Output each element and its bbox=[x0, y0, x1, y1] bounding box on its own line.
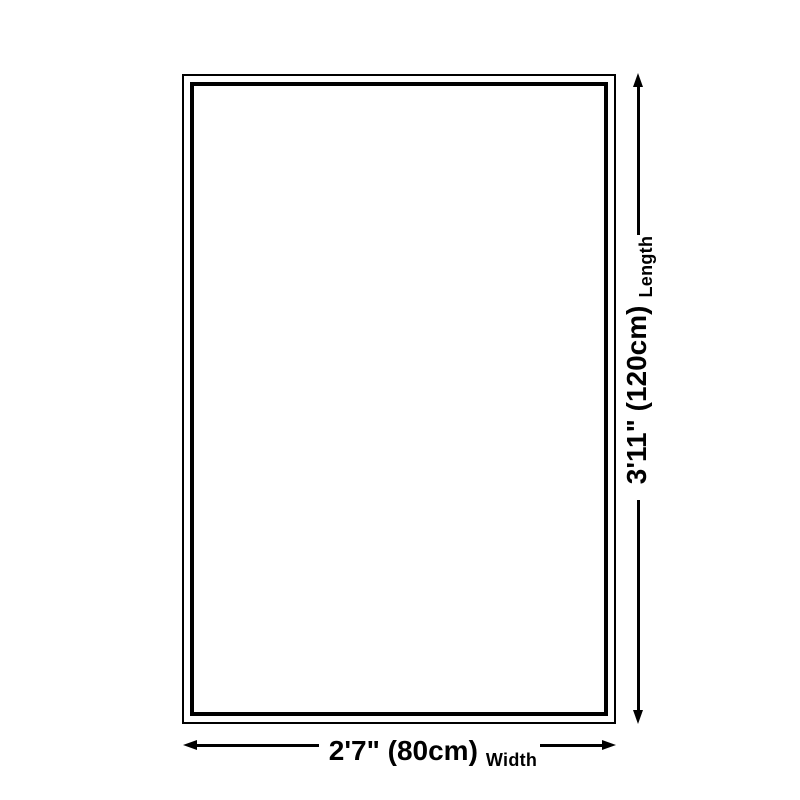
length-name: Length bbox=[636, 236, 656, 298]
width-dimension-line-left bbox=[196, 744, 319, 747]
length-dimension-label: 3'11" (120cm)Length bbox=[623, 236, 651, 485]
width-name: Width bbox=[486, 750, 537, 770]
width-dimension-label: 2'7" (80cm)Width bbox=[329, 737, 537, 765]
arrow-right-icon bbox=[602, 740, 616, 750]
width-dimension-line-right bbox=[540, 744, 603, 747]
length-dimension-line-upper bbox=[637, 85, 640, 235]
item-outline-outer bbox=[182, 74, 616, 724]
length-value: 3'11" (120cm) bbox=[621, 306, 652, 485]
arrow-left-icon bbox=[183, 740, 197, 750]
size-diagram: 3'11" (120cm)Length 2'7" (80cm)Width bbox=[0, 0, 800, 800]
item-outline-inner bbox=[190, 82, 608, 716]
width-value: 2'7" (80cm) bbox=[329, 735, 478, 766]
length-dimension-line-lower bbox=[637, 500, 640, 712]
arrow-down-icon bbox=[633, 710, 643, 724]
